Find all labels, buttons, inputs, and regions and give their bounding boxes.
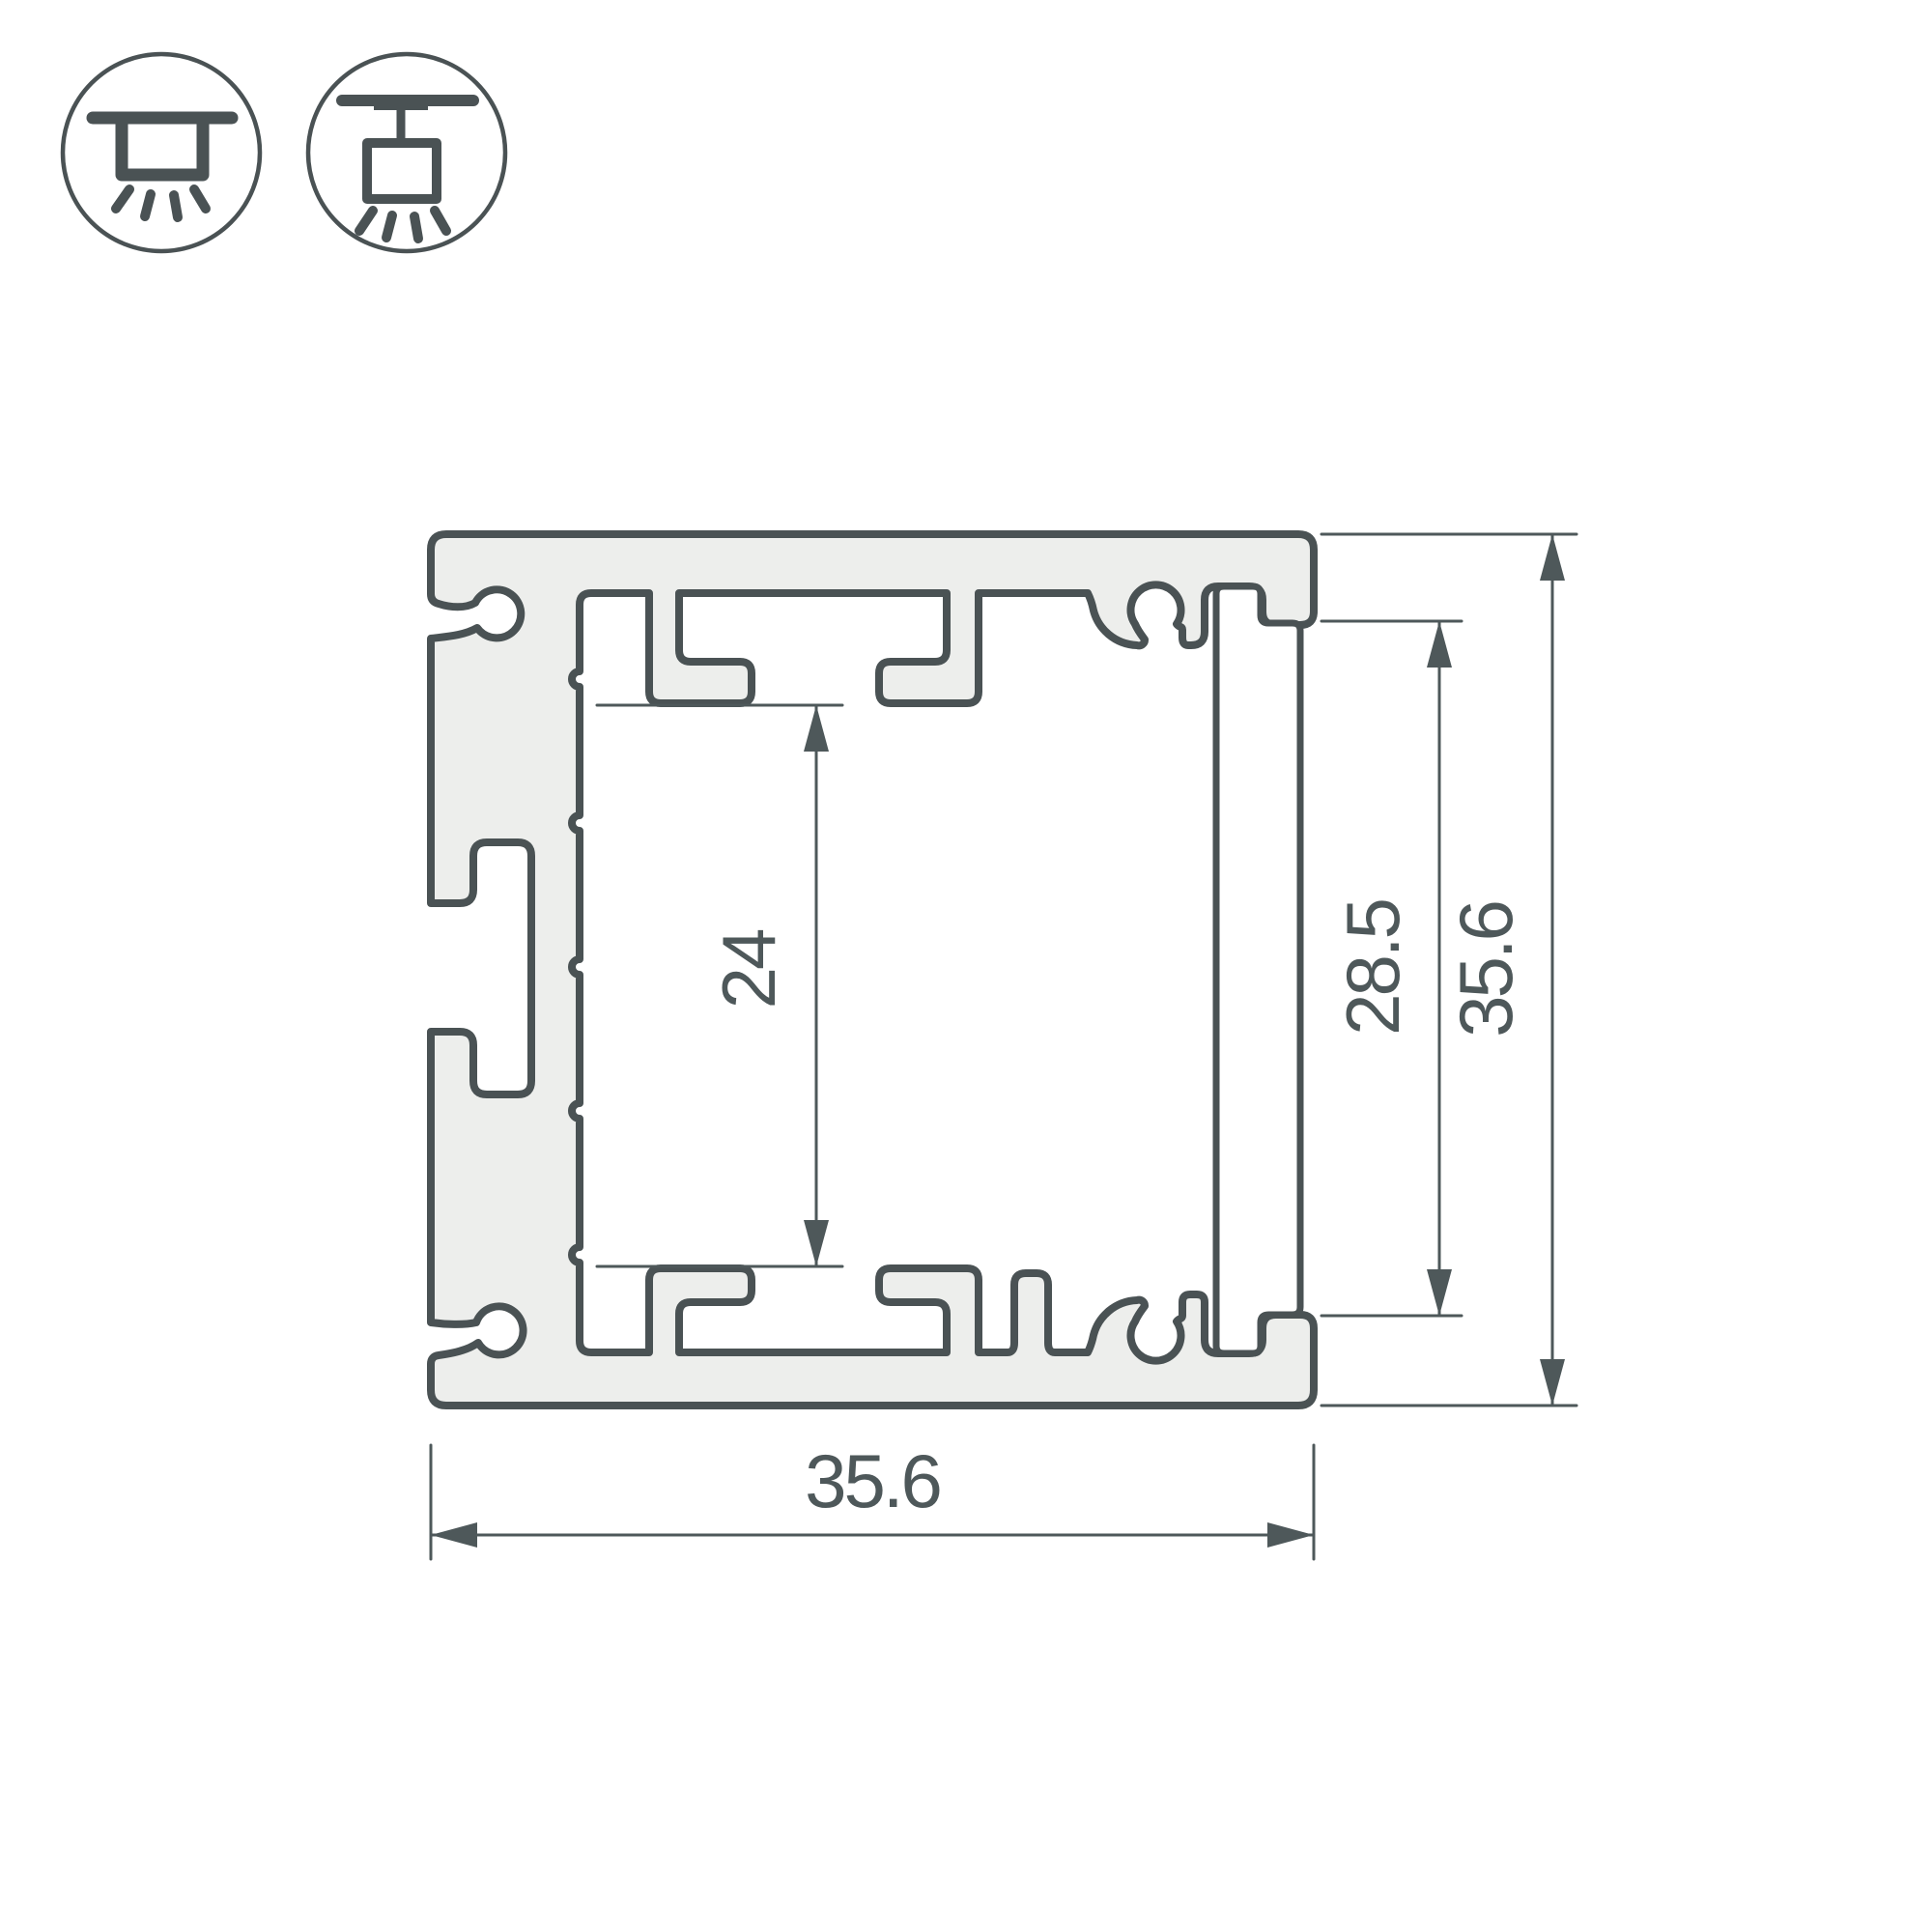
dimension-inner-height: 24 <box>597 705 842 1266</box>
arrowhead-up <box>1540 534 1565 581</box>
lamp-body <box>367 143 437 199</box>
arrowhead-down <box>804 1220 829 1266</box>
arrowhead-up <box>1427 621 1452 668</box>
profile-outline <box>431 534 1314 1406</box>
dimension-label-opening-height: 28.5 <box>1330 899 1415 1035</box>
dimension-label-overall-height: 35.6 <box>1443 902 1528 1037</box>
profile-drawing-canvas: 24 28.5 35.6 35.6 <box>0 0 1932 1932</box>
technical-drawing-page: 24 28.5 35.6 35.6 <box>0 0 1932 1932</box>
arrowhead-up <box>804 705 829 752</box>
dimension-opening-height: 28.5 <box>1321 621 1462 1316</box>
arrowhead-left <box>431 1522 477 1548</box>
dimension-overall-width: 35.6 <box>431 1438 1314 1559</box>
dimension-label-inner-height: 24 <box>706 929 791 1009</box>
arrowhead-right <box>1267 1522 1314 1548</box>
arrowhead-down <box>1540 1359 1565 1406</box>
dimension-label-overall-width: 35.6 <box>805 1438 940 1523</box>
arrowhead-down <box>1427 1269 1452 1316</box>
pendant-mount-light-icon <box>308 54 505 251</box>
icon-circle <box>63 54 260 251</box>
profile-cross-section <box>431 534 1314 1406</box>
cover-plate <box>1216 586 1300 1353</box>
surface-mount-light-icon <box>63 54 260 251</box>
